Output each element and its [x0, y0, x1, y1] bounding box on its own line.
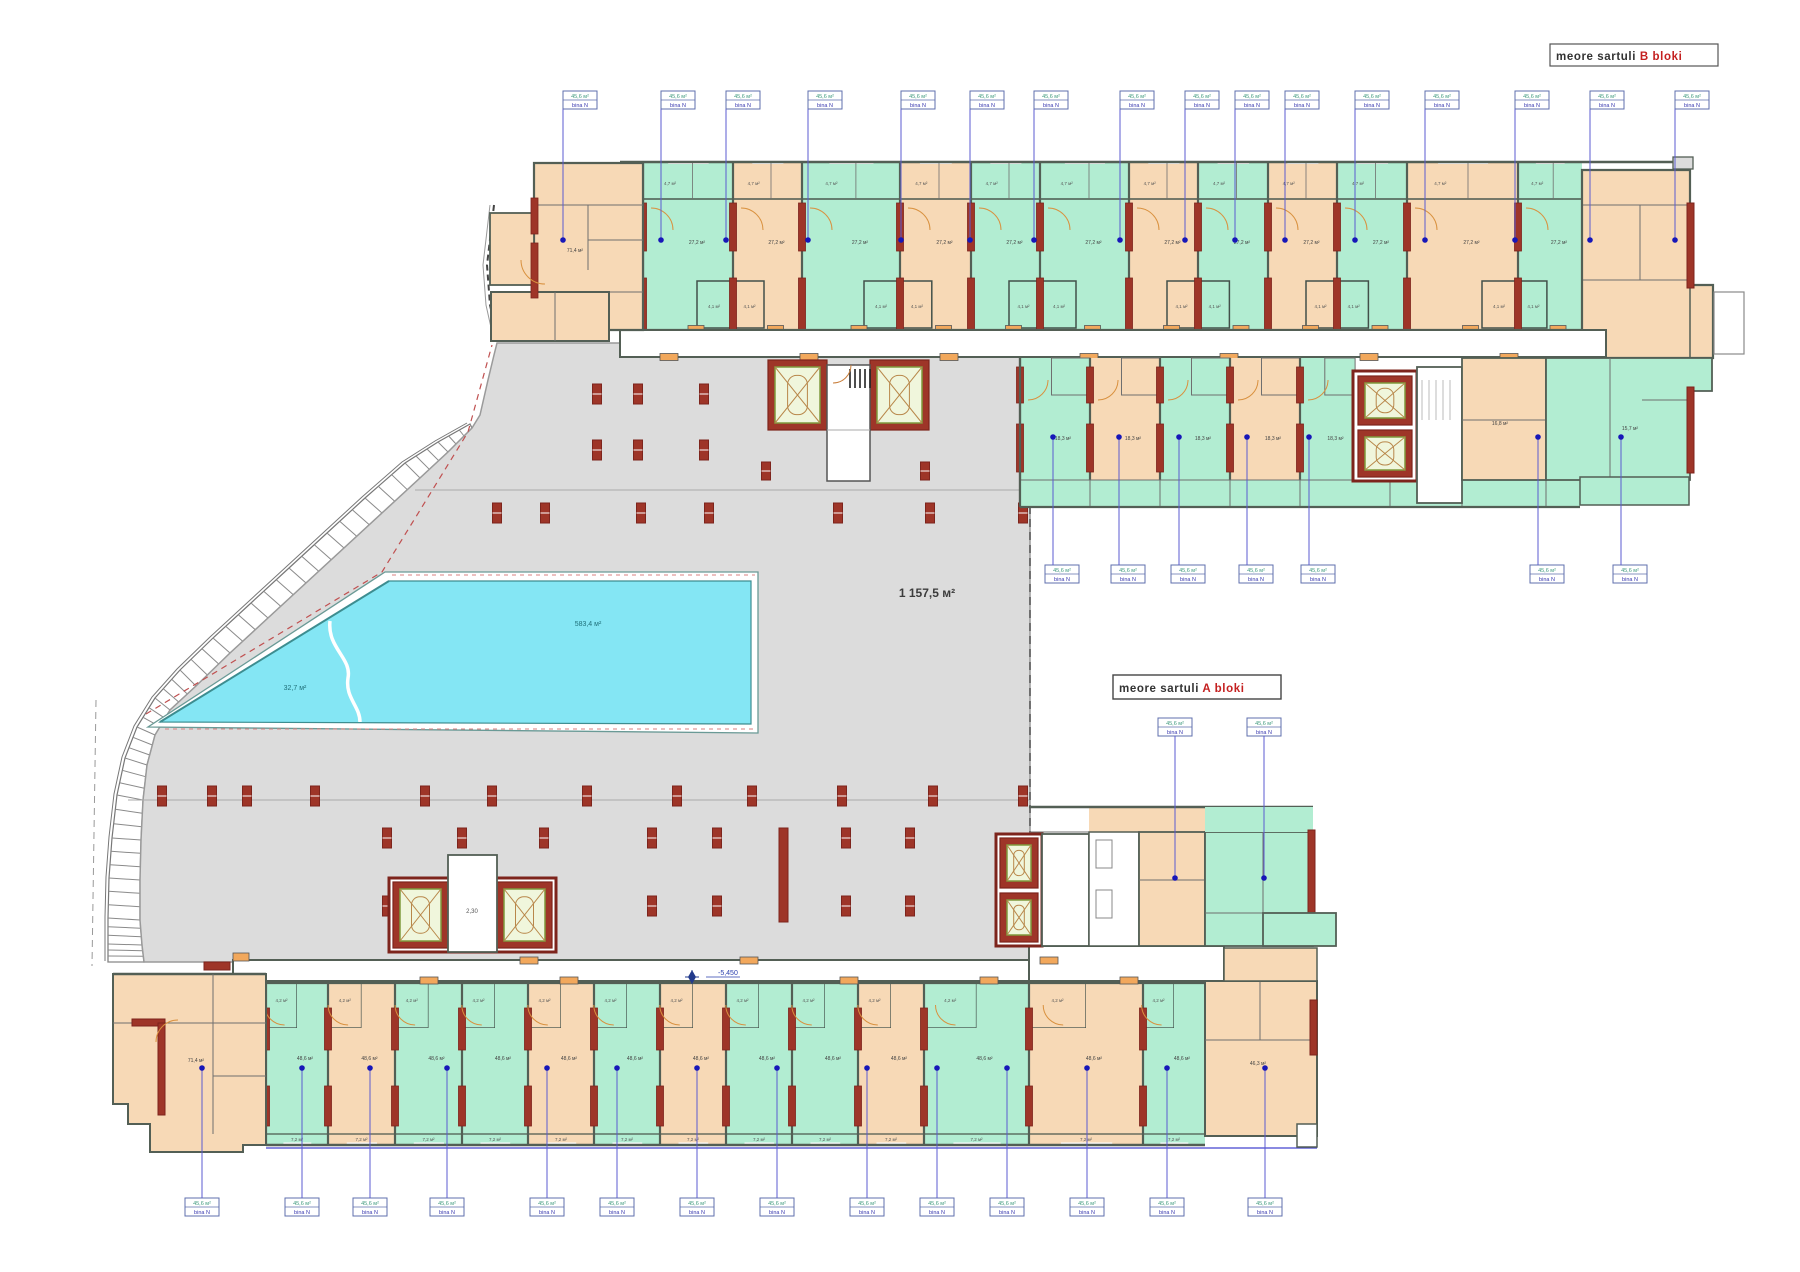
svg-text:bina N: bina N — [689, 1210, 705, 1216]
svg-text:45,6 м²: 45,6 м² — [1247, 568, 1265, 574]
svg-text:18,3 м²: 18,3 м² — [1265, 436, 1282, 442]
svg-text:4,1 м²: 4,1 м² — [1314, 304, 1327, 309]
svg-text:bina N: bina N — [1129, 103, 1145, 109]
svg-text:45,6 м²: 45,6 м² — [1166, 721, 1184, 727]
svg-text:4,1 м²: 4,1 м² — [1053, 304, 1066, 309]
svg-text:meore sartuli A bloki: meore sartuli A bloki — [1119, 683, 1245, 695]
svg-text:bina N: bina N — [572, 103, 588, 109]
svg-text:45,6 м²: 45,6 м² — [1538, 568, 1556, 574]
svg-text:27,2 м²: 27,2 м² — [1164, 240, 1181, 246]
svg-text:4,2 м²: 4,2 м² — [604, 998, 617, 1003]
svg-text:45,6 м²: 45,6 м² — [571, 94, 589, 100]
svg-text:4,2 м²: 4,2 м² — [868, 998, 881, 1003]
svg-text:bina N: bina N — [1310, 577, 1326, 583]
svg-text:48,6 м²: 48,6 м² — [1086, 1056, 1103, 1062]
svg-text:bina N: bina N — [609, 1210, 625, 1216]
svg-text:bina N: bina N — [1434, 103, 1450, 109]
svg-text:4,1 м²: 4,1 м² — [875, 304, 888, 309]
svg-text:45,6 м²: 45,6 м² — [538, 1201, 556, 1207]
svg-text:71,4 м²: 71,4 м² — [188, 1058, 205, 1064]
svg-text:bina N: bina N — [1622, 577, 1638, 583]
svg-text:bina N: bina N — [1120, 577, 1136, 583]
svg-text:bina N: bina N — [1684, 103, 1700, 109]
svg-text:27,2 м²: 27,2 м² — [689, 240, 706, 246]
svg-text:4,2 м²: 4,2 м² — [944, 998, 957, 1003]
svg-text:32,7 м²: 32,7 м² — [284, 685, 307, 692]
svg-text:18,3 м²: 18,3 м² — [1327, 436, 1344, 442]
svg-text:4,7 м²: 4,7 м² — [1144, 181, 1157, 186]
svg-text:45,6 м²: 45,6 м² — [1433, 94, 1451, 100]
svg-text:bina N: bina N — [539, 1210, 555, 1216]
svg-text:45,6 м²: 45,6 м² — [1119, 568, 1137, 574]
svg-text:bina N: bina N — [1244, 103, 1260, 109]
svg-text:27,2 м²: 27,2 м² — [1006, 240, 1023, 246]
svg-text:4,7 м²: 4,7 м² — [986, 181, 999, 186]
svg-text:45,6 м²: 45,6 м² — [1683, 94, 1701, 100]
svg-text:bina N: bina N — [1167, 730, 1183, 736]
svg-text:45,6 м²: 45,6 м² — [1363, 94, 1381, 100]
svg-text:4,1 м²: 4,1 м² — [1175, 304, 1188, 309]
svg-text:45,6 м²: 45,6 м² — [858, 1201, 876, 1207]
svg-text:bina N: bina N — [1257, 1210, 1273, 1216]
svg-text:45,6 м²: 45,6 м² — [608, 1201, 626, 1207]
svg-text:45,6 м²: 45,6 м² — [1293, 94, 1311, 100]
svg-text:45,6 м²: 45,6 м² — [1042, 94, 1060, 100]
svg-text:bina N: bina N — [1294, 103, 1310, 109]
svg-text:18,3 м²: 18,3 м² — [1055, 436, 1072, 442]
svg-text:27,2 м²: 27,2 м² — [1085, 240, 1102, 246]
svg-text:45,6 м²: 45,6 м² — [1128, 94, 1146, 100]
svg-text:45,6 м²: 45,6 м² — [928, 1201, 946, 1207]
svg-text:48,6 м²: 48,6 м² — [361, 1056, 378, 1062]
svg-text:45,6 м²: 45,6 м² — [978, 94, 996, 100]
svg-text:4,7 м²: 4,7 м² — [1213, 181, 1226, 186]
svg-text:45,6 м²: 45,6 м² — [1053, 568, 1071, 574]
svg-text:45,6 м²: 45,6 м² — [1179, 568, 1197, 574]
svg-text:45,6 м²: 45,6 м² — [1621, 568, 1639, 574]
svg-text:7,2 м²: 7,2 м² — [1080, 1137, 1093, 1142]
svg-text:4,2 м²: 4,2 м² — [736, 998, 749, 1003]
svg-text:bina N: bina N — [1180, 577, 1196, 583]
svg-text:bina N: bina N — [1159, 1210, 1175, 1216]
svg-text:2,30: 2,30 — [466, 909, 478, 915]
svg-text:48,6 м²: 48,6 м² — [693, 1056, 710, 1062]
svg-text:4,7 м²: 4,7 м² — [664, 181, 677, 186]
svg-text:4,2 м²: 4,2 м² — [275, 998, 288, 1003]
svg-text:45,6 м²: 45,6 м² — [734, 94, 752, 100]
svg-text:meore sartuli B bloki: meore sartuli B bloki — [1556, 51, 1682, 63]
svg-text:bina N: bina N — [670, 103, 686, 109]
svg-text:4,7 м²: 4,7 м² — [1434, 181, 1447, 186]
svg-text:bina N: bina N — [1524, 103, 1540, 109]
svg-text:27,2 м²: 27,2 м² — [1463, 240, 1480, 246]
svg-text:27,2 м²: 27,2 м² — [1303, 240, 1320, 246]
svg-text:7,2 м²: 7,2 м² — [970, 1137, 983, 1142]
svg-text:4,2 м²: 4,2 м² — [802, 998, 815, 1003]
svg-text:45,6 м²: 45,6 м² — [438, 1201, 456, 1207]
svg-text:48,6 м²: 48,6 м² — [561, 1056, 578, 1062]
svg-text:45,6 м²: 45,6 м² — [1598, 94, 1616, 100]
svg-text:4,2 м²: 4,2 м² — [1051, 998, 1064, 1003]
svg-text:583,4 м²: 583,4 м² — [575, 621, 602, 628]
svg-text:45,6 м²: 45,6 м² — [1523, 94, 1541, 100]
svg-text:4,1 м²: 4,1 м² — [911, 304, 924, 309]
svg-text:45,6 м²: 45,6 м² — [1256, 1201, 1274, 1207]
svg-text:71,4 м²: 71,4 м² — [567, 248, 584, 254]
svg-text:45,6 м²: 45,6 м² — [669, 94, 687, 100]
svg-text:bina N: bina N — [929, 1210, 945, 1216]
svg-text:45,6 м²: 45,6 м² — [1309, 568, 1327, 574]
svg-text:27,2 м²: 27,2 м² — [1551, 240, 1568, 246]
svg-text:4,7 м²: 4,7 м² — [825, 181, 838, 186]
svg-text:bina N: bina N — [817, 103, 833, 109]
svg-text:bina N: bina N — [1194, 103, 1210, 109]
svg-text:7,2 м²: 7,2 м² — [1168, 1137, 1181, 1142]
svg-text:7,2 м²: 7,2 м² — [621, 1137, 634, 1142]
svg-text:bina N: bina N — [910, 103, 926, 109]
svg-text:18,3 м²: 18,3 м² — [1125, 436, 1142, 442]
svg-text:bina N: bina N — [1248, 577, 1264, 583]
svg-text:7,2 м²: 7,2 м² — [753, 1137, 766, 1142]
svg-text:27,2 м²: 27,2 м² — [852, 240, 869, 246]
svg-text:48,6 м²: 48,6 м² — [825, 1056, 842, 1062]
svg-text:bina N: bina N — [999, 1210, 1015, 1216]
svg-text:bina N: bina N — [1539, 577, 1555, 583]
svg-text:bina N: bina N — [859, 1210, 875, 1216]
svg-text:16,8 м²: 16,8 м² — [1492, 421, 1509, 427]
svg-text:4,7 м²: 4,7 м² — [1531, 181, 1544, 186]
svg-text:7,2 м²: 7,2 м² — [687, 1137, 700, 1142]
svg-text:48,6 м²: 48,6 м² — [627, 1056, 644, 1062]
svg-text:27,2 м²: 27,2 м² — [936, 240, 953, 246]
svg-text:7,2 м²: 7,2 м² — [422, 1137, 435, 1142]
svg-text:bina N: bina N — [1079, 1210, 1095, 1216]
svg-text:45,6 м²: 45,6 м² — [1158, 1201, 1176, 1207]
svg-text:45,6 м²: 45,6 м² — [1193, 94, 1211, 100]
svg-text:7,2 м²: 7,2 м² — [489, 1137, 502, 1142]
svg-text:45,6 м²: 45,6 м² — [193, 1201, 211, 1207]
svg-text:4,2 м²: 4,2 м² — [472, 998, 485, 1003]
svg-text:4,2 м²: 4,2 м² — [406, 998, 419, 1003]
svg-text:-5,450: -5,450 — [718, 970, 738, 977]
svg-text:4,1 м²: 4,1 м² — [1527, 304, 1540, 309]
svg-text:7,2 м²: 7,2 м² — [885, 1137, 898, 1142]
svg-text:45,6 м²: 45,6 м² — [816, 94, 834, 100]
svg-text:4,1 м²: 4,1 м² — [1209, 304, 1222, 309]
svg-text:45,6 м²: 45,6 м² — [293, 1201, 311, 1207]
svg-text:bina N: bina N — [362, 1210, 378, 1216]
svg-text:45,6 м²: 45,6 м² — [998, 1201, 1016, 1207]
svg-text:4,7 м²: 4,7 м² — [1061, 181, 1074, 186]
svg-text:48,6 м²: 48,6 м² — [1174, 1056, 1191, 1062]
svg-text:1 157,5 м²: 1 157,5 м² — [899, 586, 955, 600]
svg-text:4,2 м²: 4,2 м² — [1152, 998, 1165, 1003]
svg-text:45,6 м²: 45,6 м² — [768, 1201, 786, 1207]
svg-text:bina N: bina N — [1054, 577, 1070, 583]
svg-text:bina N: bina N — [735, 103, 751, 109]
svg-text:4,7 м²: 4,7 м² — [748, 181, 761, 186]
svg-text:45,6 м²: 45,6 м² — [1255, 721, 1273, 727]
svg-text:18,3 м²: 18,3 м² — [1195, 436, 1212, 442]
svg-text:48,6 м²: 48,6 м² — [428, 1056, 445, 1062]
svg-text:7,2 м²: 7,2 м² — [819, 1137, 832, 1142]
svg-text:bina N: bina N — [979, 103, 995, 109]
svg-text:4,2 м²: 4,2 м² — [538, 998, 551, 1003]
svg-text:7,2 м²: 7,2 м² — [355, 1137, 368, 1142]
svg-text:4,1 м²: 4,1 м² — [1348, 304, 1361, 309]
svg-text:bina N: bina N — [769, 1210, 785, 1216]
svg-text:27,2 м²: 27,2 м² — [768, 240, 785, 246]
svg-text:48,6 м²: 48,6 м² — [297, 1056, 314, 1062]
svg-text:bina N: bina N — [1364, 103, 1380, 109]
svg-text:bina N: bina N — [1043, 103, 1059, 109]
svg-text:4,1 м²: 4,1 м² — [743, 304, 756, 309]
svg-text:45,6 м²: 45,6 м² — [909, 94, 927, 100]
svg-text:bina N: bina N — [294, 1210, 310, 1216]
svg-text:45,6 м²: 45,6 м² — [361, 1201, 379, 1207]
svg-text:4,1 м²: 4,1 м² — [708, 304, 721, 309]
svg-text:27,2 м²: 27,2 м² — [1373, 240, 1390, 246]
svg-text:7,2 м²: 7,2 м² — [555, 1137, 568, 1142]
svg-text:4,1 м²: 4,1 м² — [1493, 304, 1506, 309]
svg-text:48,6 м²: 48,6 м² — [976, 1056, 993, 1062]
svg-text:bina N: bina N — [439, 1210, 455, 1216]
svg-text:bina N: bina N — [1599, 103, 1615, 109]
svg-text:15,7 м²: 15,7 м² — [1622, 426, 1639, 432]
svg-text:bina N: bina N — [194, 1210, 210, 1216]
svg-text:4,2 м²: 4,2 м² — [339, 998, 352, 1003]
svg-text:4,2 м²: 4,2 м² — [670, 998, 683, 1003]
svg-text:45,6 м²: 45,6 м² — [1078, 1201, 1096, 1207]
svg-text:45,6 м²: 45,6 м² — [688, 1201, 706, 1207]
svg-text:bina N: bina N — [1256, 730, 1272, 736]
svg-text:48,6 м²: 48,6 м² — [759, 1056, 776, 1062]
svg-text:45,6 м²: 45,6 м² — [1243, 94, 1261, 100]
svg-text:4,1 м²: 4,1 м² — [1017, 304, 1030, 309]
svg-text:48,6 м²: 48,6 м² — [891, 1056, 908, 1062]
svg-text:4,7 м²: 4,7 м² — [915, 181, 928, 186]
svg-text:4,7 м²: 4,7 м² — [1352, 181, 1365, 186]
svg-text:48,6 м²: 48,6 м² — [495, 1056, 512, 1062]
